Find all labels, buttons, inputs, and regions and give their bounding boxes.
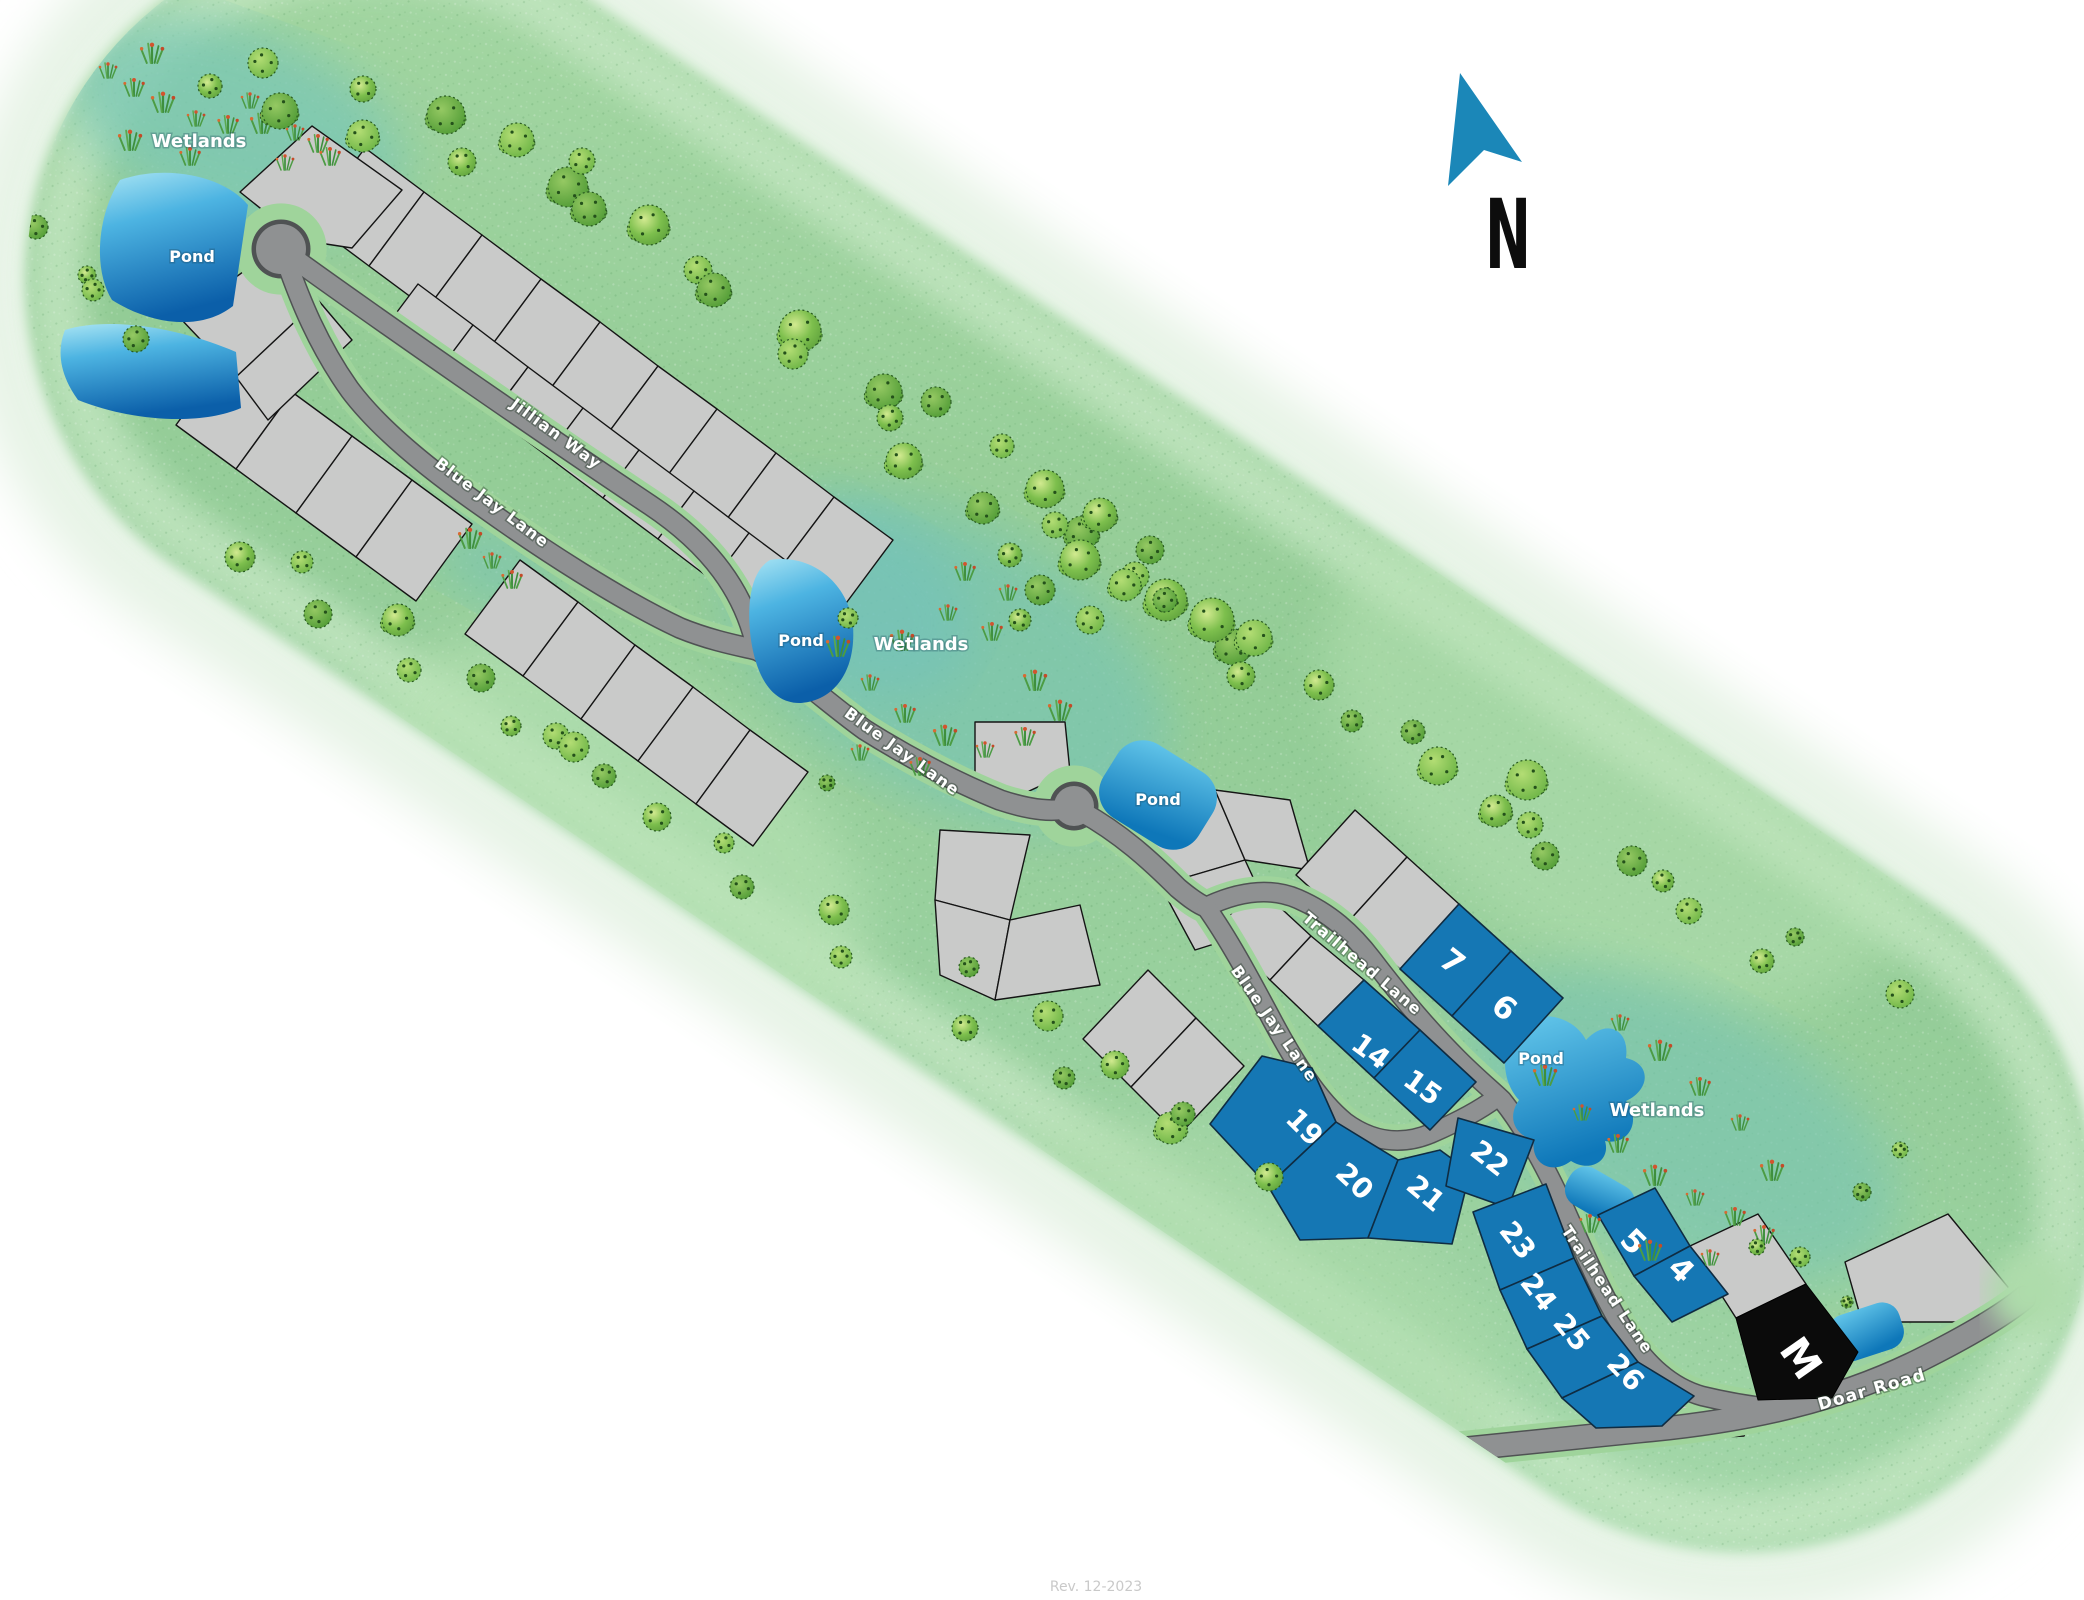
tree-icon xyxy=(569,148,595,174)
tree-icon xyxy=(1531,842,1559,870)
tree-icon xyxy=(819,895,849,925)
tree-icon xyxy=(1175,1383,1199,1407)
tree-icon xyxy=(82,279,104,301)
tree-icon xyxy=(1790,1247,1810,1267)
tree-icon xyxy=(643,803,671,831)
tree-icon xyxy=(1341,710,1363,732)
tree-icon xyxy=(248,48,278,78)
tree-icon xyxy=(1676,898,1702,924)
wetlands-label: Wetlands xyxy=(874,634,969,655)
tree-icon xyxy=(123,326,149,352)
pond-label: Pond xyxy=(1135,790,1181,809)
tree-icon xyxy=(1081,1329,1103,1351)
tree-icon xyxy=(959,957,979,977)
tree-icon xyxy=(952,1015,978,1041)
tree-icon xyxy=(1266,1435,1286,1455)
tree-icon xyxy=(1042,512,1068,538)
tree-icon xyxy=(1786,928,1804,946)
pond-label: Pond xyxy=(1518,1049,1564,1068)
tree-icon xyxy=(501,716,521,736)
tree-icon xyxy=(1841,1296,1853,1308)
tree-icon xyxy=(225,542,255,572)
tree-icon xyxy=(198,74,222,98)
tree-icon xyxy=(592,764,616,788)
tree-icon xyxy=(1401,720,1425,744)
revision-note: Rev. 12-2023 xyxy=(1050,1579,1142,1595)
tree-icon xyxy=(1009,609,1031,631)
parcel xyxy=(995,905,1100,1000)
tree-icon xyxy=(990,434,1014,458)
tree-icon xyxy=(1025,575,1055,605)
site-plan-map: 761415192021222324252654M Jillian WayBlu… xyxy=(0,0,2084,1600)
north-label: N xyxy=(1485,179,1531,291)
tree-icon xyxy=(291,551,313,573)
wetlands-label: Wetlands xyxy=(1610,1100,1705,1121)
tree-icon xyxy=(1098,1332,1124,1358)
wetlands-label: Wetlands xyxy=(152,131,247,152)
tree-icon xyxy=(1886,980,1914,1008)
tree-icon xyxy=(448,148,476,176)
tree-icon xyxy=(778,339,808,369)
pond-label: Pond xyxy=(169,247,215,266)
tree-icon xyxy=(819,775,835,791)
tree-icon xyxy=(1246,1421,1274,1449)
tree-icon xyxy=(1652,870,1674,892)
tree-icon xyxy=(998,543,1022,567)
tree-icon xyxy=(1749,1239,1765,1255)
tree-icon xyxy=(304,600,332,628)
tree-icon xyxy=(350,76,376,102)
tree-icon xyxy=(1101,1051,1129,1079)
pond-label: Pond xyxy=(778,631,824,650)
tree-icon xyxy=(467,664,495,692)
tree-icon xyxy=(1033,1001,1063,1031)
north-arrow-icon xyxy=(1448,73,1522,186)
tree-icon xyxy=(1076,606,1104,634)
tree-icon xyxy=(1171,1102,1195,1126)
cul-de-sac xyxy=(1054,786,1094,826)
tree-icon xyxy=(1227,662,1255,690)
tree-icon xyxy=(1136,536,1164,564)
tree-icon xyxy=(1617,846,1647,876)
tree-icon xyxy=(559,732,589,762)
tree-icon xyxy=(838,608,858,628)
tree-icon xyxy=(730,875,754,899)
tree-icon xyxy=(714,833,734,853)
tree-icon xyxy=(1517,812,1543,838)
tree-icon xyxy=(921,387,951,417)
north-indicator: N xyxy=(1448,73,1531,291)
tree-icon xyxy=(1053,1067,1075,1089)
tree-icon xyxy=(1304,670,1334,700)
tree-icon xyxy=(1255,1163,1283,1191)
tree-icon xyxy=(1892,1142,1908,1158)
cul-de-sac xyxy=(256,224,306,274)
tree-icon xyxy=(830,946,852,968)
tree-icon xyxy=(1853,1183,1871,1201)
tree-icon xyxy=(397,658,421,682)
tree-icon xyxy=(1167,1372,1197,1402)
tree-icon xyxy=(1750,949,1774,973)
tree-icon xyxy=(1153,588,1177,612)
tree-icon xyxy=(877,405,903,431)
